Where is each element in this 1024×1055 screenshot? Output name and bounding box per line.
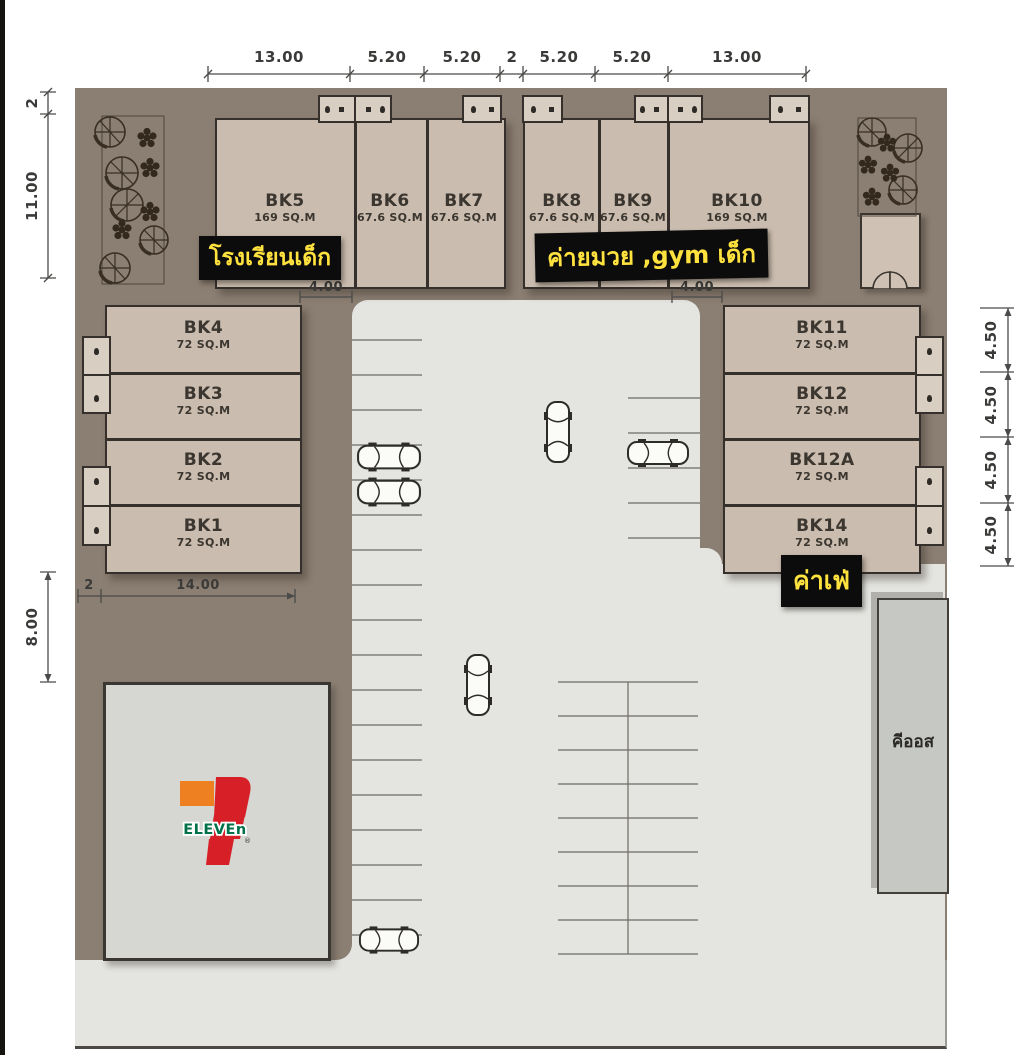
toilet-fixture-icon (471, 106, 476, 113)
double-door-icon (872, 271, 908, 289)
dim-label: 5.20 (612, 48, 651, 66)
sink-fixture-icon (654, 107, 659, 112)
toilet-fixture-icon (927, 348, 932, 355)
tree-cluster-left (86, 112, 172, 288)
unit-area: 169 SQ.M (706, 211, 768, 224)
toilet-block (82, 466, 111, 546)
unit-area: 67.6 SQ.M (431, 211, 497, 224)
unit-name: BK11 (795, 319, 849, 338)
toilet-block (769, 95, 810, 123)
unit-name: BK4 (177, 319, 231, 338)
dim-label: 13.00 (254, 48, 304, 66)
car (625, 438, 691, 468)
car (356, 441, 422, 473)
building-wing-left: BK4 72 SQ.M BK3 72 SQ.M BK2 72 SQ.M BK1 … (105, 305, 302, 574)
seven-eleven-wordmark: ELEVEn (183, 822, 247, 838)
dim-label: 2 (507, 48, 518, 66)
storage-room (860, 213, 921, 289)
kiosk: คีออส (877, 598, 949, 894)
sink-fixture-icon (796, 107, 801, 112)
unit-name: BK14 (795, 517, 849, 536)
registered-mark: ® (244, 837, 251, 845)
unit-bk10: BK10 169 SQ.M (706, 192, 768, 224)
unit-name: BK10 (706, 192, 768, 211)
sink-fixture-icon (339, 107, 344, 112)
road-strip (75, 960, 947, 1049)
toilet-fixture-icon (927, 395, 932, 402)
unit-area: 72 SQ.M (177, 404, 231, 417)
parking-lot-upper (352, 300, 700, 566)
unit-divider (426, 120, 429, 287)
unit-area: 67.6 SQ.M (529, 211, 595, 224)
kiosk-label: คีออส (879, 728, 947, 755)
unit-area: 72 SQ.M (177, 470, 231, 483)
toilet-block (634, 95, 703, 123)
unit-bk3: BK3 72 SQ.M (177, 385, 231, 417)
unit-divider (725, 372, 919, 375)
toilet-fixture-icon (778, 106, 783, 113)
toilet-fixture-icon (531, 106, 536, 113)
unit-divider (107, 504, 300, 507)
toilet-block (915, 466, 944, 546)
toilet-fixture-icon (927, 527, 932, 534)
tree-cluster-right (852, 112, 924, 218)
unit-bk6: BK6 67.6 SQ.M (357, 192, 423, 224)
unit-area: 72 SQ.M (795, 536, 849, 549)
unit-bk2: BK2 72 SQ.M (177, 451, 231, 483)
dim-lines-right (980, 308, 1014, 566)
car (543, 400, 573, 464)
unit-area: 72 SQ.M (789, 470, 854, 483)
toilet-divider (917, 505, 942, 507)
dim-lines-left-upper (40, 88, 56, 282)
unit-name: BK6 (357, 192, 423, 211)
toilet-divider (84, 374, 109, 376)
label-cafe: ค่าเฟ่ (781, 555, 862, 607)
unit-divider (725, 438, 919, 441)
dim-label: 4.50 (982, 450, 1000, 489)
label-boxing-gym: ค่ายมวย ,gym เด็ก (535, 229, 769, 283)
toilet-divider (84, 505, 109, 507)
unit-name: BK8 (529, 192, 595, 211)
unit-area: 67.6 SQ.M (600, 211, 666, 224)
car (463, 653, 493, 717)
label-kids-school: โรงเรียนเด็ก (199, 236, 341, 280)
dim-label: 2 (23, 98, 41, 109)
toilet-block (82, 336, 111, 414)
toilet-block (915, 336, 944, 414)
dim-label: 5.20 (539, 48, 578, 66)
unit-area: 72 SQ.M (795, 404, 849, 417)
unit-name: BK9 (600, 192, 666, 211)
car (356, 476, 422, 508)
seven-eleven-store: ELEVEn ® (103, 682, 331, 961)
toilet-fixture-icon (380, 106, 385, 113)
sink-fixture-icon (489, 107, 494, 112)
toilet-block (462, 95, 502, 123)
toilet-fixture-icon (94, 478, 99, 485)
dim-lines-top (204, 66, 810, 82)
sink-fixture-icon (366, 107, 371, 112)
unit-divider (107, 372, 300, 375)
unit-name: BK2 (177, 451, 231, 470)
toilet-fixture-icon (94, 348, 99, 355)
toilet-divider (917, 374, 942, 376)
toilet-fixture-icon (94, 395, 99, 402)
dim-label: 13.00 (712, 48, 762, 66)
unit-name: BK12A (789, 451, 854, 470)
unit-bk4: BK4 72 SQ.M (177, 319, 231, 351)
unit-area: 169 SQ.M (254, 211, 316, 224)
seven-eleven-logo: ELEVEn ® (178, 773, 252, 867)
dim-label: 8.00 (23, 607, 41, 646)
unit-bk1: BK1 72 SQ.M (177, 517, 231, 549)
building-wing-right: BK11 72 SQ.M BK12 72 SQ.M BK12A 72 SQ.M … (723, 305, 921, 574)
toilet-fixture-icon (927, 478, 932, 485)
parking-lot-lower (352, 564, 945, 962)
unit-area: 72 SQ.M (177, 338, 231, 351)
toilet-divider (667, 97, 669, 121)
unit-area: 72 SQ.M (795, 338, 849, 351)
toilet-divider (354, 97, 356, 121)
site-plan: BK5 169 SQ.M BK6 67.6 SQ.M BK7 67.6 SQ.M… (0, 0, 1024, 1055)
sink-fixture-icon (678, 107, 683, 112)
image-left-edge (0, 0, 5, 1055)
unit-area: 72 SQ.M (177, 536, 231, 549)
dim-label: 11.00 (23, 171, 41, 221)
unit-name: BK7 (431, 192, 497, 211)
sink-fixture-icon (549, 107, 554, 112)
unit-bk14: BK14 72 SQ.M (795, 517, 849, 549)
toilet-block (522, 95, 563, 123)
unit-bk8: BK8 67.6 SQ.M (529, 192, 595, 224)
unit-bk9: BK9 67.6 SQ.M (600, 192, 666, 224)
dim-lines-left-lower (40, 572, 56, 682)
car (358, 925, 420, 955)
dim-label: 4.50 (982, 320, 1000, 359)
dim-label: 4.50 (982, 515, 1000, 554)
toilet-fixture-icon (325, 106, 330, 113)
unit-divider (107, 438, 300, 441)
unit-name: BK12 (795, 385, 849, 404)
unit-bk7: BK7 67.6 SQ.M (431, 192, 497, 224)
dim-label: 5.20 (442, 48, 481, 66)
unit-bk5: BK5 169 SQ.M (254, 192, 316, 224)
toilet-fixture-icon (692, 106, 697, 113)
unit-divider (725, 504, 919, 507)
unit-name: BK1 (177, 517, 231, 536)
unit-bk11: BK11 72 SQ.M (795, 319, 849, 351)
unit-bk12a: BK12A 72 SQ.M (789, 451, 854, 483)
unit-area: 67.6 SQ.M (357, 211, 423, 224)
unit-bk12: BK12 72 SQ.M (795, 385, 849, 417)
dim-label: 4.50 (982, 385, 1000, 424)
dim-label: 5.20 (367, 48, 406, 66)
toilet-block (318, 95, 392, 123)
toilet-fixture-icon (94, 527, 99, 534)
unit-name: BK3 (177, 385, 231, 404)
toilet-fixture-icon (640, 106, 645, 113)
unit-name: BK5 (254, 192, 316, 211)
